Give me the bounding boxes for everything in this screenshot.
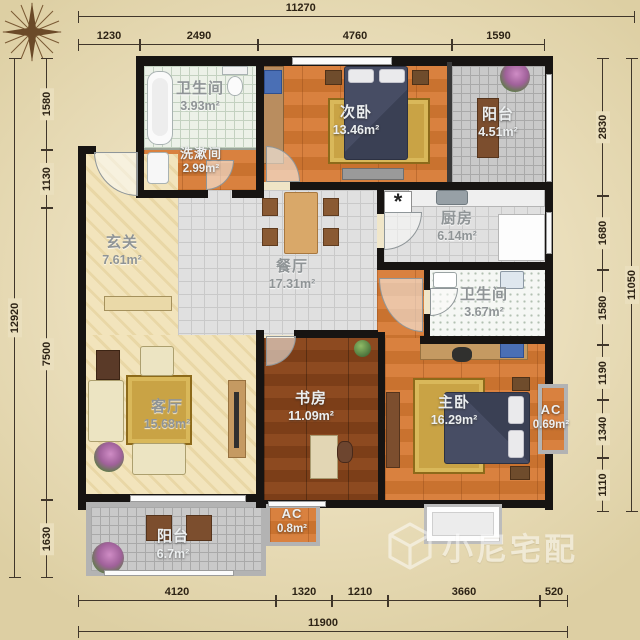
room-area: 0.69m² — [523, 418, 579, 432]
dim-left-segment: 1580 — [46, 58, 47, 150]
room-name: 书房 — [261, 390, 361, 409]
wall-segment — [294, 330, 378, 338]
room-area: 16.29m² — [404, 413, 504, 429]
dim-value: 1590 — [486, 30, 510, 42]
dim-value: 11900 — [308, 617, 338, 629]
wall-segment — [256, 62, 264, 190]
wall-segment — [378, 332, 385, 508]
tv — [234, 392, 239, 448]
potted-plant — [354, 340, 371, 357]
wardrobe — [386, 392, 400, 468]
dim-right-segment: 1340 — [602, 400, 603, 458]
dim-value: 1340 — [596, 413, 610, 445]
dining-table — [284, 192, 318, 254]
kitchen-sink — [436, 190, 468, 205]
dim-value: 1210 — [348, 586, 372, 598]
dim-bottom-segment: 1210 — [332, 600, 388, 601]
pillow — [508, 430, 524, 458]
desk — [310, 435, 338, 479]
nightstand — [325, 70, 342, 85]
room-name: 主卧 — [404, 394, 504, 413]
dim-right-segment: 1110 — [602, 458, 603, 512]
dim-value: 1580 — [40, 88, 54, 120]
dim-value: 1190 — [596, 357, 610, 389]
dim-top-segment: 1590 — [452, 44, 545, 45]
room-area: 17.31m² — [242, 277, 342, 293]
armchair — [140, 346, 174, 376]
room-name: 客厅 — [117, 398, 217, 417]
room-name: 玄关 — [72, 234, 172, 253]
nightstand — [510, 466, 530, 480]
dim-value: 3660 — [452, 586, 476, 598]
room-name: 次卧 — [306, 104, 406, 123]
dim-value: 520 — [545, 586, 563, 598]
room-area: 4.51m² — [448, 125, 548, 141]
room-area: 7.61m² — [72, 253, 172, 269]
watermark: 小尼宅配 — [388, 522, 578, 570]
dim-value: 1230 — [97, 30, 121, 42]
room-label-master: 主卧 16.29m² — [404, 394, 504, 428]
window — [104, 570, 234, 576]
dim-value: 11050 — [625, 266, 639, 304]
room-name: 厨房 — [407, 210, 507, 229]
nightstand — [412, 70, 429, 85]
wall-segment — [290, 182, 545, 190]
room-area: 0.8m² — [264, 522, 320, 536]
dim-top-segment: 4760 — [258, 44, 452, 45]
room-name: 阳台 — [448, 106, 548, 125]
room-area: 13.46m² — [306, 123, 406, 139]
dim-value: 1580 — [596, 291, 610, 323]
dim-right-segment: 2830 — [602, 58, 603, 196]
room-label-ac1: AC 0.69m² — [523, 402, 579, 433]
dim-value: 1320 — [292, 586, 316, 598]
room-name: AC — [264, 506, 320, 522]
wall-segment — [78, 146, 86, 510]
dim-value: 2490 — [187, 30, 211, 42]
room-label-kitchen: 厨房 6.14m² — [407, 210, 507, 244]
wall-segment — [136, 190, 208, 198]
nightstand — [512, 377, 530, 391]
room-label-dining: 餐厅 17.31m² — [242, 258, 342, 292]
dining-chair — [323, 198, 339, 216]
console-table — [104, 296, 172, 311]
room-name: 餐厅 — [242, 258, 342, 277]
dim-value: 1680 — [596, 217, 610, 249]
dim-left-segment: 7500 — [46, 208, 47, 500]
window — [292, 57, 392, 65]
dim-value: 4120 — [165, 586, 189, 598]
dim-right-total: 11050 — [631, 58, 632, 512]
floor-plan-canvas: * — [0, 0, 640, 640]
room-area: 6.14m² — [407, 229, 507, 245]
window — [130, 495, 246, 502]
dim-bottom-segment: 4120 — [78, 600, 276, 601]
dim-value: 11270 — [286, 2, 316, 14]
pillow — [508, 396, 524, 424]
loveseat — [132, 443, 186, 475]
dim-value: 2830 — [596, 111, 610, 143]
room-label-bath1: 卫生间 3.93m² — [150, 80, 250, 114]
room-name: AC — [523, 402, 579, 418]
wall-segment — [420, 336, 545, 344]
dim-top-segment: 1230 — [78, 44, 140, 45]
room-label-bedroom2: 次卧 13.46m² — [306, 104, 406, 138]
room-name: 卫生间 — [434, 286, 534, 305]
dim-value: 7500 — [40, 338, 54, 370]
dim-left-segment: 1130 — [46, 150, 47, 208]
desk-chair — [337, 441, 353, 463]
dim-bottom-segment: 1320 — [276, 600, 332, 601]
dining-chair — [262, 228, 278, 246]
wall-segment — [377, 190, 384, 214]
wall-segment — [256, 182, 264, 198]
potted-plant — [500, 62, 530, 92]
cube-logo-icon — [388, 522, 432, 570]
dim-bottom-segment: 3660 — [388, 600, 540, 601]
dim-left-total: 12920 — [14, 58, 15, 578]
room-label-balcony2: 阳台 6.7m² — [123, 528, 223, 562]
dim-bottom-segment: 520 — [540, 600, 568, 601]
watermark-text: 小尼宅配 — [442, 524, 578, 569]
compass-rose-icon — [1, 1, 63, 63]
wall-segment — [377, 262, 545, 270]
room-name: 卫生间 — [150, 80, 250, 99]
dim-value: 12920 — [8, 299, 22, 338]
room-name: 阳台 — [123, 528, 223, 547]
room-area: 2.99m² — [151, 162, 251, 176]
wall-segment — [424, 270, 430, 290]
room-label-living: 客厅 15.68m² — [117, 398, 217, 432]
kitchen-counter — [408, 188, 545, 207]
room-name: 洗漱间 — [151, 146, 251, 162]
room-label-foyer: 玄关 7.61m² — [72, 234, 172, 268]
dim-top-segment: 2490 — [140, 44, 258, 45]
room-area: 11.09m² — [261, 409, 361, 425]
dim-bottom-total: 11900 — [78, 631, 568, 632]
potted-plant — [94, 442, 124, 472]
room-label-balcony1: 阳台 4.51m² — [448, 106, 548, 140]
dining-chair — [262, 198, 278, 216]
dim-value: 1630 — [40, 523, 54, 555]
toilet-tank — [222, 66, 248, 75]
dim-right-segment: 1190 — [602, 345, 603, 400]
dresser — [342, 168, 404, 180]
side-table — [96, 350, 120, 380]
room-label-ac2: AC 0.8m² — [264, 506, 320, 537]
dim-value: 4760 — [343, 30, 367, 42]
dim-right-segment: 1580 — [602, 270, 603, 345]
room-area: 3.67m² — [434, 305, 534, 321]
room-area: 6.7m² — [123, 547, 223, 563]
window — [546, 212, 552, 254]
room-area: 15.68m² — [117, 417, 217, 433]
dim-value: 1110 — [596, 469, 610, 500]
computer — [500, 342, 524, 358]
pillow — [379, 69, 405, 83]
desk-chair — [452, 347, 472, 362]
computer — [264, 70, 282, 94]
room-label-study: 书房 11.09m² — [261, 390, 361, 424]
dim-left-segment: 1630 — [46, 500, 47, 578]
room-label-bath2: 卫生间 3.67m² — [434, 286, 534, 320]
pillow — [348, 69, 374, 83]
dim-top-total: 11270 — [78, 16, 635, 17]
dim-right-segment: 1680 — [602, 196, 603, 270]
dim-value: 1130 — [40, 163, 54, 195]
room-label-washroom: 洗漱间 2.99m² — [151, 146, 251, 177]
dining-chair — [323, 228, 339, 246]
room-area: 3.93m² — [150, 99, 250, 115]
